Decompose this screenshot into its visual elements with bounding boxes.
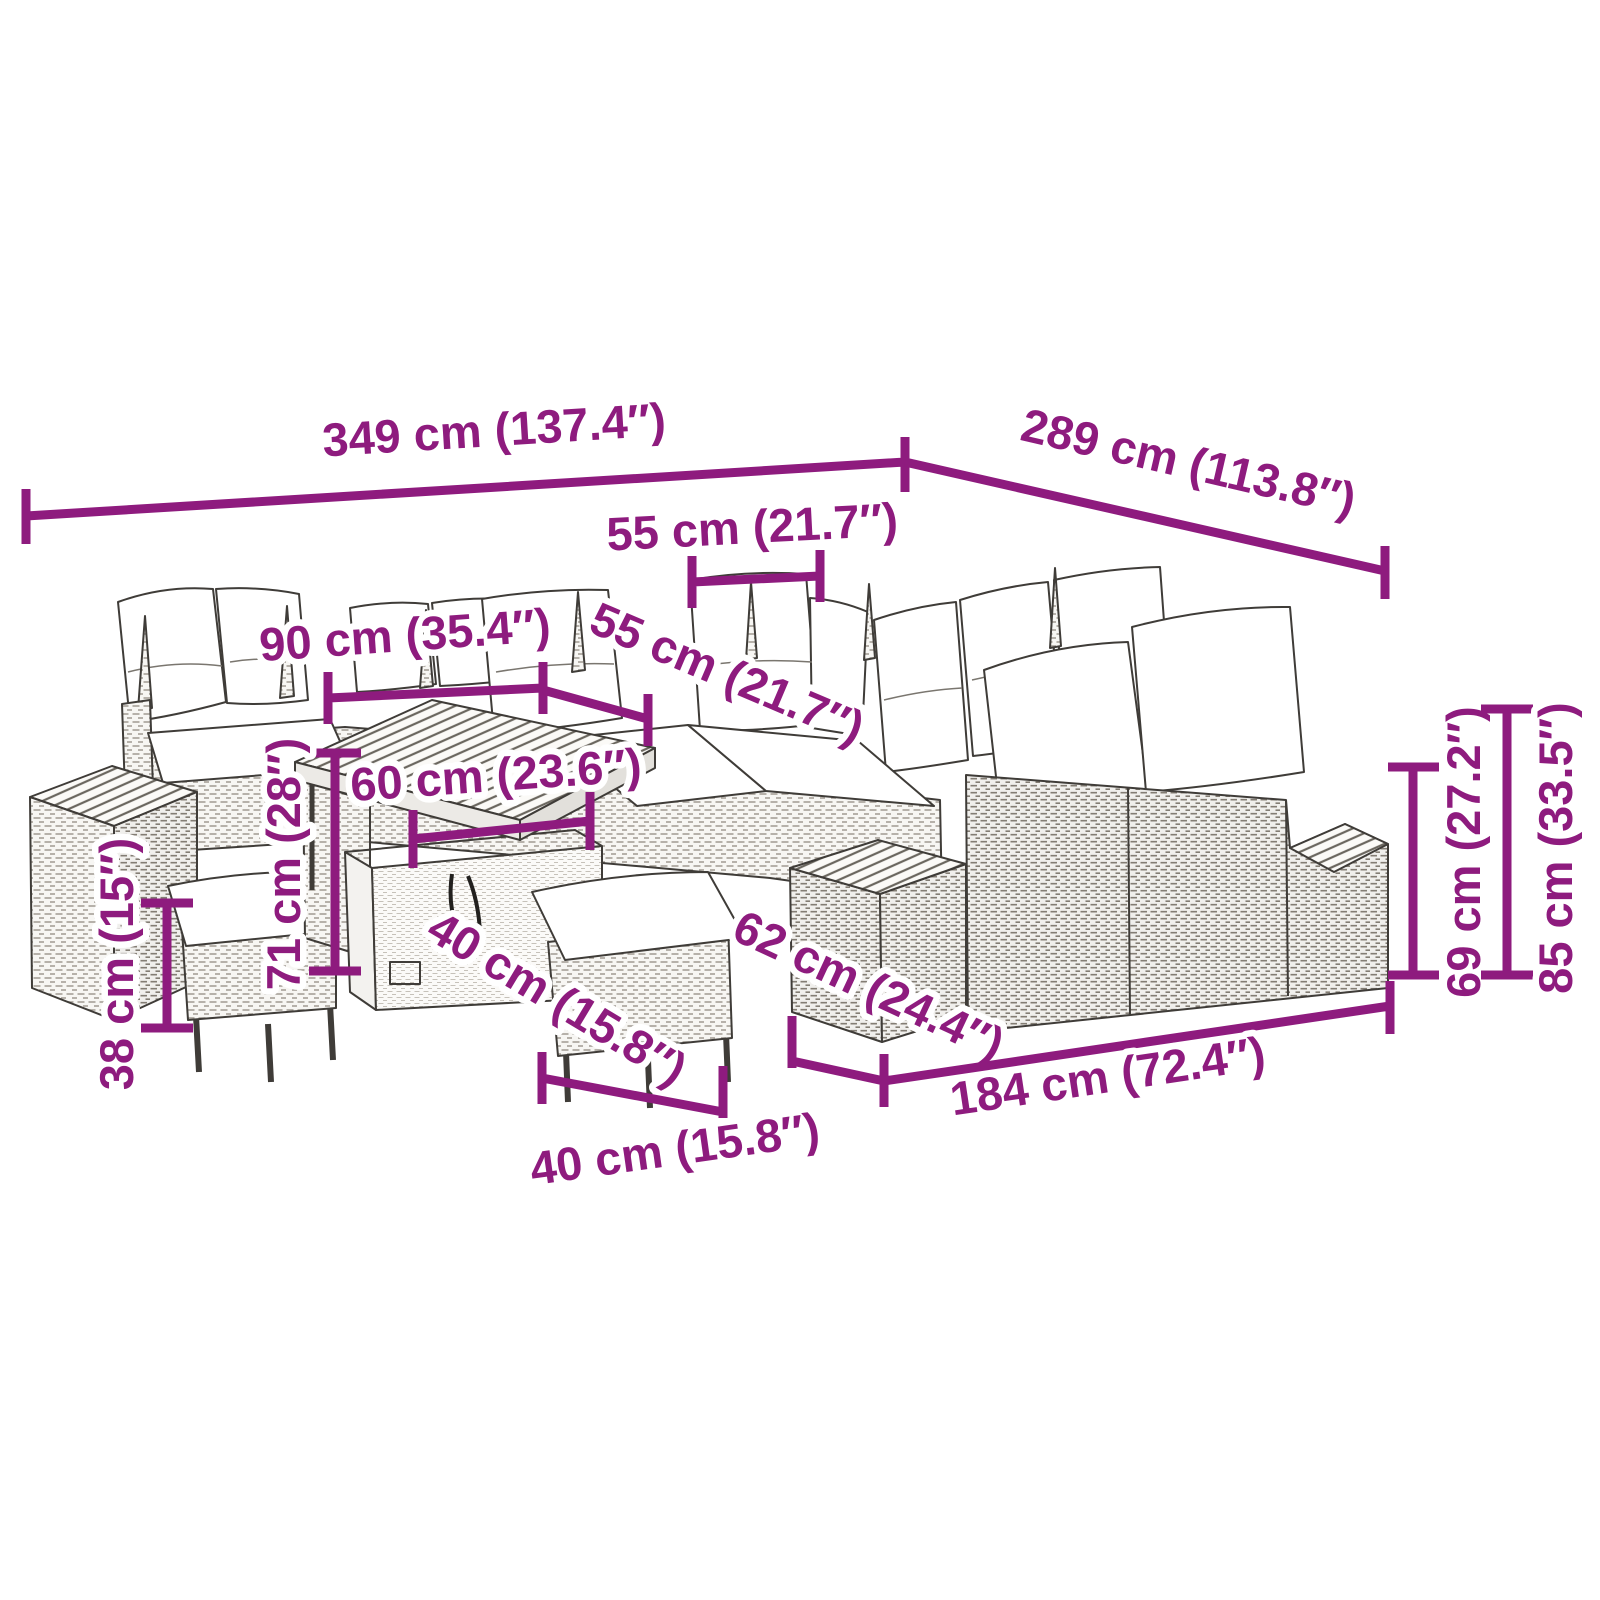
- dim-seat-back-height: 69 cm (27.2″): [1388, 706, 1490, 998]
- back-cushion: [874, 602, 968, 772]
- dim-label-total-depth: 289 cm (113.8″): [1016, 398, 1360, 526]
- bench-back-panel: [966, 775, 1388, 1032]
- dim-total-height: 85 cm (33.5″): [1481, 702, 1582, 994]
- dimension-diagram: 349 cm (137.4″) 289 cm (113.8″) 55 cm (2…: [0, 0, 1600, 1600]
- dim-label-total-height: 85 cm (33.5″): [1529, 702, 1582, 994]
- dim-label-stool-height: 38 cm (15″): [90, 838, 143, 1090]
- dimension-diagram-page: 349 cm (137.4″) 289 cm (113.8″) 55 cm (2…: [0, 0, 1600, 1600]
- dim-label-stool-width: 40 cm (15.8″): [527, 1102, 823, 1195]
- dim-label-seat-width-top: 55 cm (21.7″): [605, 492, 899, 560]
- bench-cushion: [1132, 607, 1304, 792]
- dim-label-table-height: 71 cm (28″): [257, 738, 310, 990]
- dim-line: [1388, 767, 1439, 975]
- dim-label-seat-back-height: 69 cm (27.2″): [1437, 706, 1490, 998]
- dim-label-total-width: 349 cm (137.4″): [321, 393, 668, 467]
